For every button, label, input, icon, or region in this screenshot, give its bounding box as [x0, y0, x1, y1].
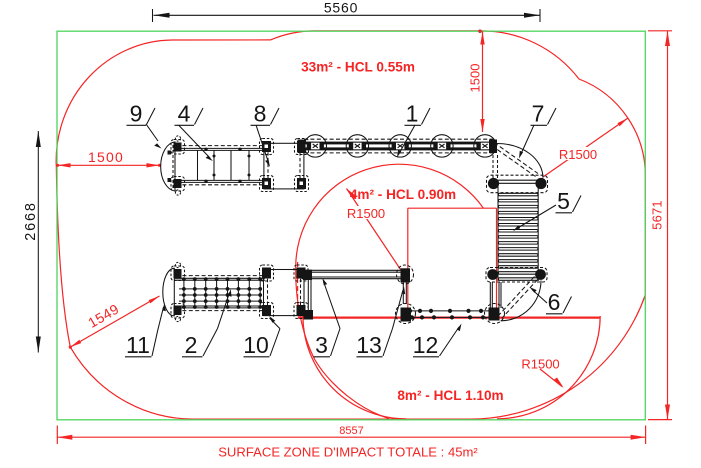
svg-text:4: 4: [178, 101, 191, 127]
svg-text:8557: 8557: [339, 425, 363, 437]
svg-text:8m² - HCL 1.10m: 8m² - HCL 1.10m: [397, 388, 503, 403]
svg-text:R1500: R1500: [347, 206, 385, 221]
svg-text:R1500: R1500: [521, 357, 559, 372]
svg-text:8: 8: [254, 101, 267, 127]
svg-text:12: 12: [413, 332, 439, 358]
svg-text:2668: 2668: [23, 201, 39, 240]
svg-text:33m² - HCL 0.55m: 33m² - HCL 0.55m: [301, 59, 415, 74]
svg-text:1500: 1500: [88, 149, 124, 165]
svg-text:SURFACE ZONE D'IMPACT TOTALE :: SURFACE ZONE D'IMPACT TOTALE : 45m²: [218, 445, 478, 460]
svg-text:5671: 5671: [650, 200, 665, 230]
svg-text:R1500: R1500: [559, 147, 597, 162]
svg-text:7: 7: [532, 101, 545, 127]
svg-text:1: 1: [406, 101, 419, 127]
svg-text:1500: 1500: [468, 64, 483, 93]
svg-text:4m² - HCL 0.90m: 4m² - HCL 0.90m: [350, 187, 456, 202]
svg-text:9: 9: [130, 101, 143, 127]
svg-text:13: 13: [356, 332, 382, 358]
svg-text:5: 5: [557, 188, 570, 214]
svg-text:11: 11: [126, 332, 150, 358]
svg-text:5560: 5560: [324, 0, 358, 16]
svg-text:2: 2: [185, 332, 198, 358]
svg-text:6: 6: [548, 289, 561, 315]
svg-text:3: 3: [315, 332, 328, 358]
svg-text:10: 10: [243, 332, 269, 358]
